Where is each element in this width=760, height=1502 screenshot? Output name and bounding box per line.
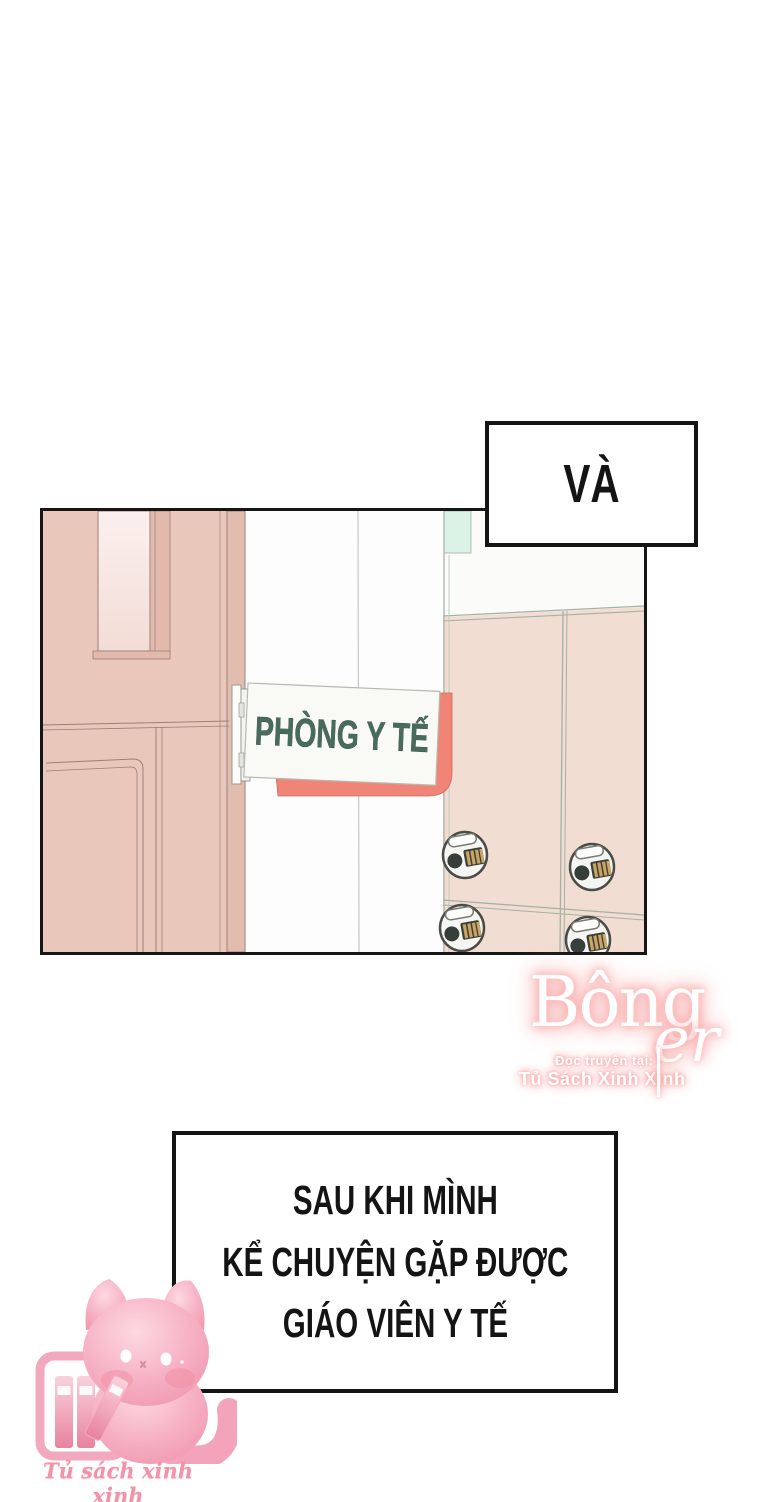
caption-bottom-line-2: KỂ CHUYỆN GẶP ĐƯỢC	[222, 1238, 568, 1286]
cat-eye-right	[161, 1353, 172, 1366]
watermark-brand-suffix: er	[653, 1009, 719, 1071]
comic-panel: PHÒNG Y TẾ	[40, 508, 647, 955]
panel-illustration: PHÒNG Y TẾ	[43, 511, 644, 952]
watermark-divider	[657, 1047, 660, 1097]
cat-nose	[141, 1362, 145, 1367]
cat-mascot-icon	[22, 1272, 237, 1464]
caption-bottom-line-3: GIÁO VIÊN Y TẾ	[282, 1299, 507, 1347]
cat-eye-left	[121, 1350, 132, 1363]
translator-watermark: Bông er Đọc truyện tại: Tủ Sách Xinh Xin…	[495, 965, 760, 1110]
mascot-logo	[22, 1272, 237, 1464]
combination-lock-icon	[440, 905, 484, 951]
sign-text: PHÒNG Y TẾ	[254, 707, 430, 761]
mascot-logo-text: Tủ sách xinh xinh	[28, 1458, 208, 1502]
lockers-illustration	[440, 511, 644, 952]
cat-body	[83, 1279, 230, 1464]
comic-page: PHÒNG Y TẾ VÀ Bông er Đọc truyện tại: Tủ…	[0, 0, 760, 1502]
combination-lock-icon	[570, 844, 614, 890]
combination-lock-icon	[443, 832, 487, 878]
caption-box-bottom: SAU KHI MÌNH KỂ CHUYỆN GẶP ĐƯỢC GIÁO VIÊ…	[172, 1131, 618, 1393]
caption-bottom-line-1: SAU KHI MÌNH	[293, 1176, 498, 1224]
door-window	[93, 511, 170, 659]
watermark-tagline: Đọc truyện tại:	[555, 1053, 654, 1068]
watermark-site-name: Tủ Sách Xinh Xinh	[519, 1069, 686, 1090]
caption-top-text: VÀ	[563, 453, 619, 515]
door-illustration	[43, 511, 245, 952]
mint-wall-accent	[444, 511, 471, 553]
caption-box-top: VÀ	[485, 421, 698, 547]
combination-lock-icon	[566, 917, 610, 952]
